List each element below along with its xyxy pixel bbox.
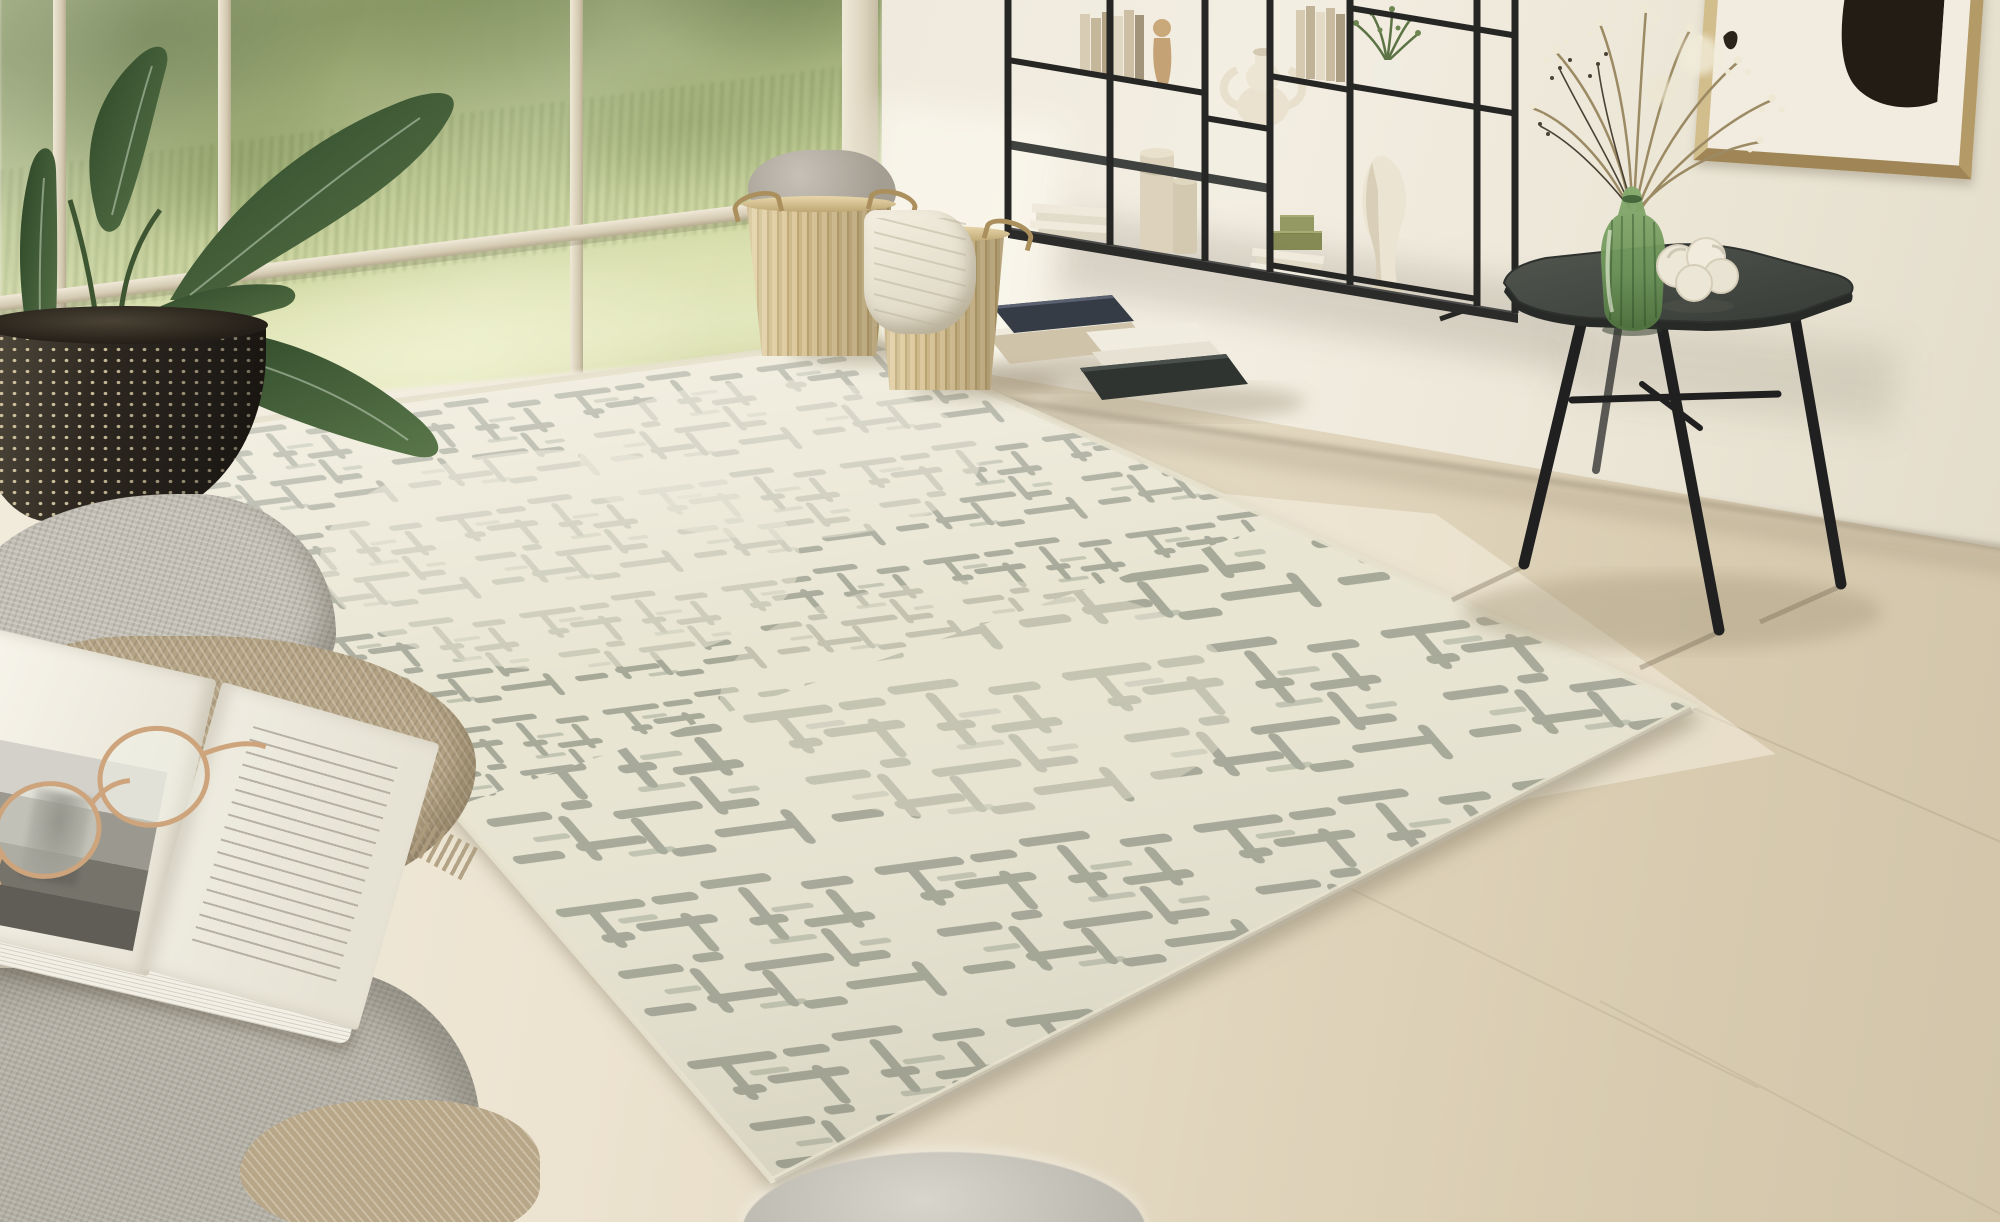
living-room-scene: NEW YORK [0,0,2000,1222]
vignette [0,0,2000,1222]
